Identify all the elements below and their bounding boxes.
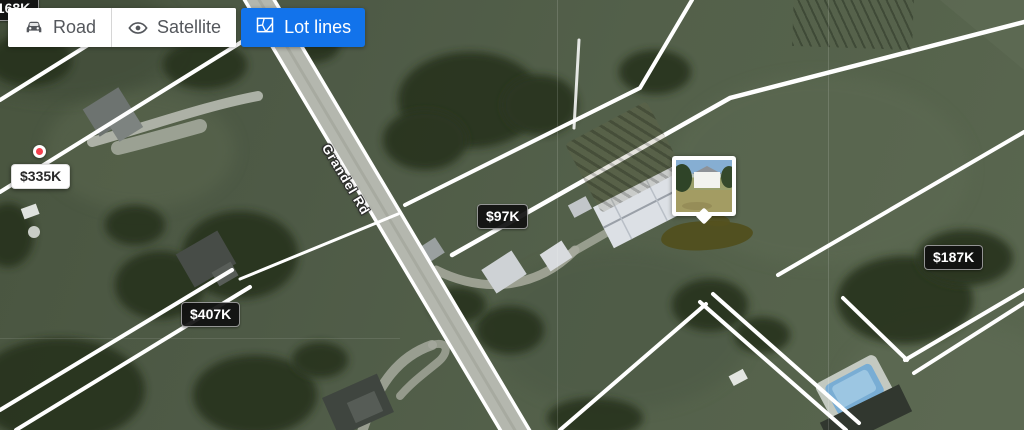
map-type-toolbar: Road Satellite Lot lines	[8, 8, 365, 47]
satellite-view-button[interactable]: Satellite	[111, 8, 236, 47]
tile-seam	[828, 0, 829, 430]
map-canvas[interactable]: Grandel Rd $168K $335K $97K $407K $187K	[0, 0, 1024, 430]
property-photo-marker[interactable]	[672, 156, 736, 216]
selected-marker-dot[interactable]	[33, 145, 46, 158]
car-icon	[23, 17, 45, 39]
road-view-label: Road	[53, 17, 96, 38]
photo-lawn	[682, 202, 712, 210]
eye-icon	[127, 17, 149, 39]
lot-lines-label: Lot lines	[284, 17, 351, 38]
photo-house	[694, 172, 720, 188]
map-type-button-group: Road Satellite	[8, 8, 236, 47]
price-marker-335k[interactable]: $335K	[11, 164, 70, 189]
road-view-button[interactable]: Road	[8, 8, 111, 47]
price-marker-187k[interactable]: $187K	[924, 245, 983, 270]
lot-lines-icon	[255, 15, 275, 40]
lot-lines-toggle-button[interactable]: Lot lines	[241, 8, 365, 47]
tile-seam	[0, 338, 400, 339]
satellite-view-label: Satellite	[157, 17, 221, 38]
photo-tree	[676, 164, 692, 192]
garden-rows-patch	[792, 0, 914, 50]
photo-tree	[721, 166, 732, 188]
property-photo-thumbnail	[676, 160, 732, 212]
tile-seam	[557, 0, 558, 430]
price-marker-97k[interactable]: $97K	[477, 204, 528, 229]
price-marker-407k[interactable]: $407K	[181, 302, 240, 327]
